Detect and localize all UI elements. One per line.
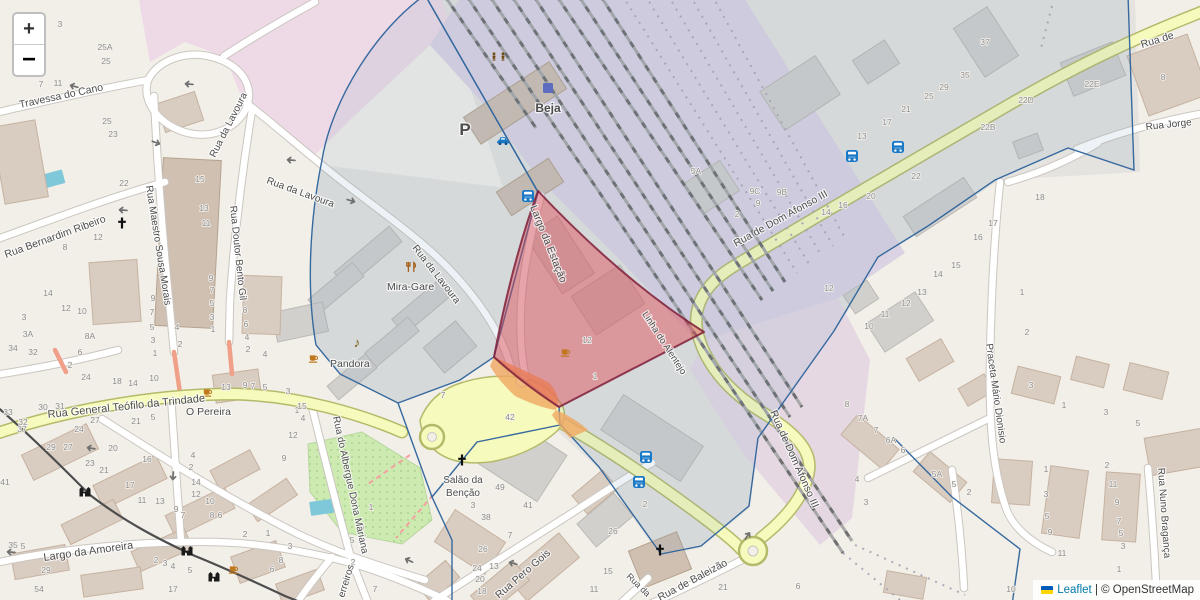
house-number: 41 <box>523 500 533 510</box>
zoom-control: + − <box>12 12 46 77</box>
house-number: 7 <box>210 285 215 295</box>
house-number: 14 <box>191 477 201 487</box>
house-number: 13 <box>917 287 927 297</box>
house-number: 11 <box>54 78 63 88</box>
ukraine-flag-icon <box>1041 586 1053 594</box>
house-number: 17 <box>125 480 135 490</box>
house-number: 9 <box>1048 527 1053 537</box>
house-number: 29 <box>46 442 56 452</box>
house-number: 7 <box>39 79 44 89</box>
house-number: 20 <box>108 443 118 453</box>
house-number: 10 <box>77 306 87 316</box>
house-number: 9 <box>151 293 156 303</box>
house-number: 2 <box>1025 327 1030 337</box>
house-number: 9 <box>174 504 179 514</box>
music-note-icon: ♪ <box>354 335 361 350</box>
house-number: 7 <box>150 307 155 317</box>
house-number: 21 <box>901 104 911 114</box>
house-number: 7 <box>373 584 378 594</box>
house-number: 41 <box>0 477 10 487</box>
house-number: 5 <box>1136 418 1141 428</box>
house-number: 1 <box>153 348 158 358</box>
house-number: 1 <box>266 528 271 538</box>
house-number: 8 <box>63 242 68 252</box>
house-number: 13 <box>221 382 231 392</box>
zoom-out-button[interactable]: − <box>14 44 44 75</box>
poi-label: Benção <box>446 488 480 499</box>
house-number: 21 <box>131 416 141 426</box>
house-number: 5A <box>691 166 702 176</box>
attribution-bar: Leaflet | © OpenStreetMap <box>1033 580 1200 600</box>
house-number: 9C <box>750 186 761 196</box>
house-number: 10 <box>864 321 874 331</box>
house-number: 12 <box>61 303 71 313</box>
house-number: 35 <box>8 540 18 550</box>
house-number: 54 <box>34 584 44 594</box>
house-number: 12 <box>901 298 911 308</box>
house-number: 4 <box>245 332 250 342</box>
house-number: 8 <box>279 555 284 565</box>
map-canvas[interactable]: ♪ 325A2571125232215131112814121033A34328… <box>0 0 1200 600</box>
house-number: 8 <box>845 399 850 409</box>
bus-stop-icon <box>522 190 534 202</box>
house-number: 2 <box>189 462 194 472</box>
house-number: 1 <box>211 324 216 334</box>
house-number: 2 <box>178 339 183 349</box>
house-number: 14 <box>821 207 831 217</box>
house-number: 4 <box>191 450 196 460</box>
poi-label: Salão da <box>443 475 483 486</box>
house-number: 13 <box>155 496 165 506</box>
house-number: 5 <box>21 541 26 551</box>
house-number: 3 <box>1104 407 1109 417</box>
house-number: 21 <box>718 582 728 592</box>
house-number: 3 <box>471 500 476 510</box>
house-number: 3 <box>1121 541 1126 551</box>
poi-label: Pandora <box>330 358 370 370</box>
house-number: 37 <box>17 424 27 434</box>
house-number: 25 <box>101 56 111 66</box>
house-number: 7 <box>874 425 879 435</box>
house-number: 9B <box>777 187 788 197</box>
house-number: 12 <box>824 283 834 293</box>
house-number: 16 <box>142 454 152 464</box>
house-number: 21 <box>99 465 109 475</box>
house-number: 16 <box>838 200 848 210</box>
house-number: 9 <box>243 380 248 390</box>
house-number: 18 <box>1035 192 1045 202</box>
bus-stop-icon <box>640 451 652 463</box>
house-number: 11 <box>881 309 890 319</box>
house-number: 11 <box>1109 479 1118 489</box>
house-number: 9 <box>1115 497 1120 507</box>
house-number: 14 <box>933 269 943 279</box>
house-number: 22D <box>1018 95 1034 105</box>
house-number: 3A <box>23 329 34 339</box>
house-number: 26 <box>478 544 488 554</box>
house-number: 37 <box>980 37 990 47</box>
house-number: 1 <box>1044 464 1049 474</box>
house-number: 3 <box>864 497 869 507</box>
house-number: 7 <box>1117 516 1122 526</box>
house-number: 14 <box>128 378 138 388</box>
house-number: 17 <box>168 584 178 594</box>
house-number: 4 <box>171 561 176 571</box>
house-number: 20 <box>475 574 485 584</box>
house-number: 7 <box>181 510 186 520</box>
house-number: 3 <box>22 312 27 322</box>
house-number: 9 <box>209 273 214 283</box>
house-number: 3 <box>210 312 215 322</box>
house-number: 5 <box>952 479 957 489</box>
railway-station-icon <box>543 83 553 93</box>
house-number: 4 <box>301 413 306 423</box>
house-number: 11 <box>590 584 599 594</box>
house-number: 5A <box>932 469 943 479</box>
house-number: 24 <box>472 563 482 573</box>
house-number: 9 <box>282 453 287 463</box>
house-number: 22E <box>1084 79 1099 89</box>
house-number: 25 <box>924 91 934 101</box>
bus-stop-icon <box>633 476 645 488</box>
house-number: 35 <box>960 70 970 80</box>
house-number: 10 <box>1006 584 1016 594</box>
house-number: 1 <box>369 502 374 512</box>
house-number: 6A <box>886 435 897 445</box>
house-number: 49 <box>495 482 505 492</box>
house-number: 3 <box>286 386 291 396</box>
house-number: 34 <box>8 343 18 353</box>
house-number: 2 <box>246 344 251 354</box>
house-number: 24 <box>74 424 84 434</box>
house-number: 15 <box>195 174 205 184</box>
house-number: 6 <box>244 319 249 329</box>
house-number: 29 <box>41 565 51 575</box>
house-number: 4 <box>263 349 268 359</box>
house-number: 5 <box>1045 511 1050 521</box>
house-number: 20 <box>866 191 876 201</box>
house-number: 9 <box>756 198 761 208</box>
house-number: 3 <box>163 558 168 568</box>
house-number: 27 <box>63 442 73 452</box>
house-number: 11 <box>138 495 147 505</box>
house-number: 7 <box>508 530 513 540</box>
house-number: 27 <box>90 415 100 425</box>
house-number: 2 <box>154 555 159 565</box>
house-number: 12 <box>191 489 201 499</box>
house-number: 5 <box>1119 528 1124 538</box>
house-number: 10 <box>149 373 159 383</box>
bus-stop-icon <box>892 141 904 153</box>
house-number: 5 <box>151 412 156 422</box>
house-number: 25A <box>97 42 112 52</box>
building <box>89 259 141 324</box>
cafe-icon <box>561 349 570 356</box>
house-number: 29 <box>939 82 949 92</box>
house-number: 7A <box>858 413 869 423</box>
house-number: 13 <box>857 131 867 141</box>
house-number: 2 <box>1105 460 1110 470</box>
house-number: 11 <box>202 218 211 228</box>
bus-stop-icon <box>846 150 858 162</box>
house-number: 12 <box>93 232 103 242</box>
house-number: 32 <box>28 347 38 357</box>
zoom-in-button[interactable]: + <box>14 14 44 44</box>
house-number: 26 <box>608 526 618 536</box>
house-number: 6 <box>270 564 275 574</box>
attribution-divider: | <box>1092 584 1101 596</box>
house-number: 14 <box>43 288 53 298</box>
house-number: 2 <box>643 499 648 509</box>
house-number: 8A <box>85 331 96 341</box>
house-number: 8 <box>210 510 215 520</box>
house-number: 6 <box>796 581 801 591</box>
house-number: 6 <box>78 347 83 357</box>
house-number: 15 <box>951 260 961 270</box>
house-number: 4 <box>175 322 180 332</box>
house-number: 18 <box>112 376 122 386</box>
house-number: 22 <box>911 171 921 181</box>
house-number: 12 <box>288 430 298 440</box>
house-number: 38 <box>481 512 491 522</box>
house-number: 24 <box>81 372 91 382</box>
house-number: 16 <box>973 232 983 242</box>
leaflet-link[interactable]: Leaflet <box>1057 584 1092 596</box>
house-number: 7 <box>441 390 446 400</box>
map-svg: ♪ 325A2571125232215131112814121033A34328… <box>0 0 1200 600</box>
house-number: 1 <box>1062 400 1067 410</box>
poi-label: Beja <box>535 101 561 115</box>
house-number: 3 <box>288 541 293 551</box>
house-number: 17 <box>988 218 998 228</box>
house-number: 3 <box>58 19 63 29</box>
house-number: 22B <box>980 122 995 132</box>
house-number: 33 <box>3 407 13 417</box>
house-number: 12 <box>582 335 592 345</box>
house-number: 42 <box>505 412 515 422</box>
cafe-icon <box>229 566 238 573</box>
house-number: 3 <box>1044 489 1049 499</box>
house-number: 2 <box>68 360 73 370</box>
house-number: 15 <box>297 401 307 411</box>
house-number: 1 <box>1117 564 1122 574</box>
poi-label: Mira-Gare <box>387 281 434 293</box>
house-number: 2 <box>243 529 248 539</box>
house-number: 7 <box>251 381 256 391</box>
house-number: 8 <box>243 305 248 315</box>
house-number: 23 <box>85 458 95 468</box>
house-number: 2 <box>735 209 740 219</box>
house-number: 23 <box>108 129 118 139</box>
house-number: 13 <box>489 561 499 571</box>
house-number: 25 <box>102 116 112 126</box>
house-number: 11 <box>1058 548 1067 558</box>
house-number: 6 <box>218 510 223 520</box>
house-number: 22 <box>119 178 129 188</box>
house-number: 6 <box>901 445 906 455</box>
poi-label: O Pereira <box>186 406 231 418</box>
house-number: 10 <box>205 496 215 506</box>
house-number: 15 <box>603 566 613 576</box>
house-number: 18 <box>477 586 487 596</box>
house-number: 1 <box>1020 287 1025 297</box>
poi-label: P <box>459 120 470 139</box>
house-number: 4 <box>855 474 860 484</box>
house-number: 5 <box>188 565 193 575</box>
house-number: 17 <box>882 117 892 127</box>
house-number: 3 <box>151 335 156 345</box>
osm-attribution[interactable]: © OpenStreetMap <box>1101 584 1194 596</box>
house-number: 5 <box>210 298 215 308</box>
house-number: 2 <box>967 487 972 497</box>
house-number: 5 <box>350 535 355 545</box>
house-number: 1 <box>593 371 598 381</box>
cafe-icon <box>309 355 318 362</box>
house-number: 13 <box>199 203 209 213</box>
house-number: 5 <box>263 382 268 392</box>
house-number: 3 <box>1029 380 1034 390</box>
house-number: 5 <box>150 322 155 332</box>
house-number: 8 <box>1161 72 1166 82</box>
